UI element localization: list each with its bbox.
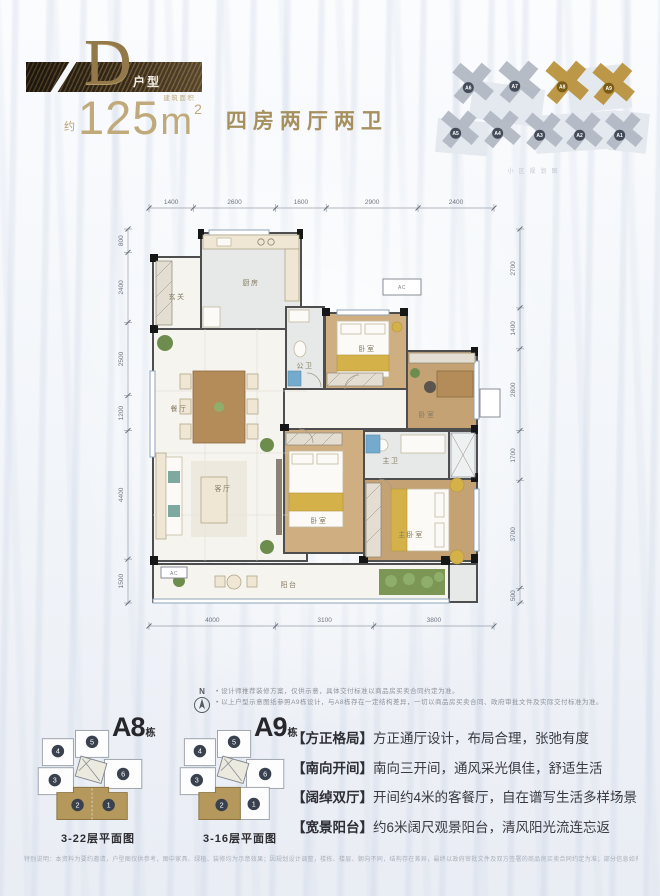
unit-type-suffix: 户型 bbox=[133, 73, 161, 90]
svg-text:1: 1 bbox=[107, 801, 111, 810]
svg-text:4000: 4000 bbox=[205, 617, 220, 624]
feature-item: 【宽景阳台】约6米阔尺观景阳台，清风阳光流连忘返 bbox=[292, 816, 652, 846]
keyplan-a8: A8栋 5 4 3 6 2 1 3-22层平面图 bbox=[30, 712, 180, 846]
keyplan-a8-unit-5: 5 bbox=[86, 736, 98, 748]
coffee-table bbox=[201, 477, 227, 523]
keyplan-a8-unit-6: 6 bbox=[117, 768, 129, 780]
keyplan-a9-unit-4: 4 bbox=[194, 745, 206, 757]
feature-list: 【方正格局】方正通厅设计，布局合理，张弛有度 【南向开间】南向三开间，通风采光俱… bbox=[292, 727, 652, 845]
compass-north-label: N bbox=[192, 688, 212, 696]
svg-text:500: 500 bbox=[510, 590, 517, 601]
feature-item: 【方正格局】方正通厅设计，布局合理，张弛有度 bbox=[292, 727, 652, 757]
svg-text:2900: 2900 bbox=[365, 199, 380, 206]
svg-text:4: 4 bbox=[198, 747, 202, 756]
svg-text:3: 3 bbox=[195, 776, 199, 785]
svg-text:1400: 1400 bbox=[510, 321, 517, 336]
note-line: • 以上户型示意图纸参照A9栋设计，与A8栋存在一定结构差异，一切以商品房买卖合… bbox=[216, 697, 646, 708]
svg-text:1400: 1400 bbox=[164, 199, 179, 206]
svg-text:2800: 2800 bbox=[510, 382, 517, 397]
siteplan-diagram: A6A7A8A9A5A4A3A2A1 bbox=[416, 52, 654, 160]
siteplan: A6A7A8A9A5A4A3A2A1 小区规划图 bbox=[416, 52, 654, 175]
svg-text:6: 6 bbox=[263, 770, 267, 779]
label-living: 客厅 bbox=[215, 484, 232, 493]
feature-item: 【南向开间】南向三开间，通风采光俱佳，舒适生活 bbox=[292, 757, 652, 787]
svg-text:A1: A1 bbox=[616, 133, 623, 139]
svg-text:A4: A4 bbox=[494, 131, 501, 137]
label-master-bath: 主卫 bbox=[383, 456, 400, 465]
svg-text:5: 5 bbox=[90, 737, 94, 746]
note-line: • 设计师推荐装修方案，仅供示意，具体交付标准以商品房买卖合同约定为准。 bbox=[216, 686, 646, 697]
keyplan-a9-unit-5: 5 bbox=[228, 736, 240, 748]
svg-text:2700: 2700 bbox=[510, 261, 517, 276]
svg-text:4: 4 bbox=[56, 747, 60, 756]
dimension-strip-bottom: 400031003800 bbox=[139, 614, 504, 632]
svg-text:A3: A3 bbox=[536, 133, 543, 139]
dimension-strip-right: 27001400280017003700500 bbox=[508, 221, 526, 611]
svg-text:1700: 1700 bbox=[510, 448, 517, 463]
room-corridor bbox=[284, 389, 407, 429]
svg-text:2: 2 bbox=[220, 801, 224, 810]
siteplan-legend: 小区规划图 bbox=[416, 166, 654, 175]
svg-text:AC: AC bbox=[170, 571, 178, 577]
keyplan-a9-diagram: 5 4 3 6 2 1 bbox=[174, 726, 290, 826]
area-about: 约 bbox=[64, 118, 75, 134]
svg-text:A5: A5 bbox=[452, 131, 459, 137]
keyplan-a8-unit-4: 4 bbox=[52, 745, 64, 757]
keyplan-a8-unit-3: 3 bbox=[49, 774, 61, 786]
svg-text:1: 1 bbox=[252, 800, 256, 809]
room-equipment-platform bbox=[449, 564, 477, 602]
dimension-strip-left: 80024002500120044001500 bbox=[116, 221, 134, 611]
plant-living-1 bbox=[260, 438, 274, 452]
tv-cabinet bbox=[276, 459, 282, 535]
ac-platform-balcony: AC bbox=[161, 567, 187, 578]
keyplan-a9-unit-1: 1 bbox=[248, 798, 260, 810]
keyplan-a8-diagram: 5 4 3 6 2 1 bbox=[32, 726, 148, 826]
keyplan-a9-unit-6: 6 bbox=[259, 768, 271, 780]
fine-print: 特别说明：本资料为要约邀请，户型图仅供参考，图中家具、绿植、装修均为示意效果；因… bbox=[24, 854, 638, 863]
keyplan-a9-caption: 3-16层平面图 bbox=[172, 830, 308, 846]
svg-text:2600: 2600 bbox=[227, 199, 242, 206]
entry-wardrobe bbox=[156, 261, 172, 325]
svg-text:A7: A7 bbox=[512, 84, 519, 90]
svg-text:1600: 1600 bbox=[294, 199, 309, 206]
label-bedroom-ne: 卧室 bbox=[359, 344, 376, 353]
svg-text:800: 800 bbox=[118, 235, 125, 246]
svg-text:1500: 1500 bbox=[118, 573, 125, 588]
bedroom-center-furniture bbox=[286, 429, 343, 527]
svg-text:2400: 2400 bbox=[449, 199, 464, 206]
svg-text:A2: A2 bbox=[576, 133, 583, 139]
svg-text:3800: 3800 bbox=[427, 617, 442, 624]
dimension-strip-top: 14002600160029002400 bbox=[139, 196, 504, 214]
room-layout-text: 四房两厅两卫 bbox=[226, 105, 388, 135]
floorplan: AC AC 玄关 厨房 餐厅 公卫 卧室 卧室 客厅 卧室 主卫 主卧室 阳台 bbox=[139, 221, 504, 611]
living-sofa bbox=[156, 453, 182, 539]
svg-text:A6: A6 bbox=[465, 85, 472, 91]
keyplan-a8-caption: 3-22层平面图 bbox=[30, 830, 166, 846]
label-dining: 餐厅 bbox=[171, 404, 188, 413]
ac-platform-top: AC bbox=[383, 279, 421, 295]
label-guest-bath: 公卫 bbox=[297, 362, 314, 370]
master-bedroom-furniture bbox=[366, 478, 464, 564]
svg-text:A8: A8 bbox=[559, 85, 566, 91]
svg-text:2400: 2400 bbox=[118, 280, 125, 295]
plant-dining bbox=[157, 335, 173, 351]
svg-text:A9: A9 bbox=[606, 86, 613, 92]
area-headline: 约 125 建筑面积m 2 四房两厅两卫 bbox=[64, 94, 388, 141]
area-unit: 建筑面积m bbox=[160, 103, 192, 141]
floorplan-poster: D 户型 约 125 建筑面积m 2 四房两厅两卫 A6A7A8A9A5A4A3… bbox=[0, 0, 660, 896]
plant-living-2 bbox=[260, 540, 274, 554]
label-bedroom-study: 卧室 bbox=[419, 410, 436, 419]
label-master-bedroom: 主卧室 bbox=[398, 530, 424, 539]
svg-text:5: 5 bbox=[232, 737, 236, 746]
svg-text:2500: 2500 bbox=[118, 351, 125, 366]
unit-type-letter: D bbox=[84, 30, 132, 96]
svg-text:1200: 1200 bbox=[118, 405, 125, 420]
ac-platform-right bbox=[480, 389, 500, 417]
svg-text:6: 6 bbox=[121, 770, 125, 779]
svg-text:4400: 4400 bbox=[118, 487, 125, 502]
keyplan-a9-unit-3: 3 bbox=[191, 774, 203, 786]
disclaimer-notes: • 设计师推荐装修方案，仅供示意，具体交付标准以商品房买卖合同约定为准。 • 以… bbox=[216, 686, 646, 708]
label-bedroom-center: 卧室 bbox=[311, 516, 328, 525]
svg-text:2: 2 bbox=[76, 801, 80, 810]
area-unit-note: 建筑面积 bbox=[163, 96, 195, 103]
area-superscript: 2 bbox=[194, 101, 202, 117]
area-value: 125 bbox=[78, 94, 159, 141]
banner-slash-divider bbox=[49, 60, 77, 94]
keyplan-a8-unit-1: 1 bbox=[102, 799, 114, 811]
keyplan-a8-unit-2: 2 bbox=[71, 799, 83, 811]
label-kitchen: 厨房 bbox=[243, 278, 260, 287]
feature-item: 【阔绰双厅】开间约4米的客餐厅，自在谱写生活多样场景 bbox=[292, 786, 652, 816]
label-balcony: 阳台 bbox=[281, 580, 298, 589]
label-entry: 玄关 bbox=[169, 292, 186, 301]
svg-text:AC: AC bbox=[398, 285, 406, 291]
svg-text:3700: 3700 bbox=[510, 527, 517, 542]
svg-text:3100: 3100 bbox=[317, 617, 332, 624]
keyplan-a9-unit-2: 2 bbox=[215, 799, 227, 811]
svg-text:3: 3 bbox=[53, 776, 57, 785]
